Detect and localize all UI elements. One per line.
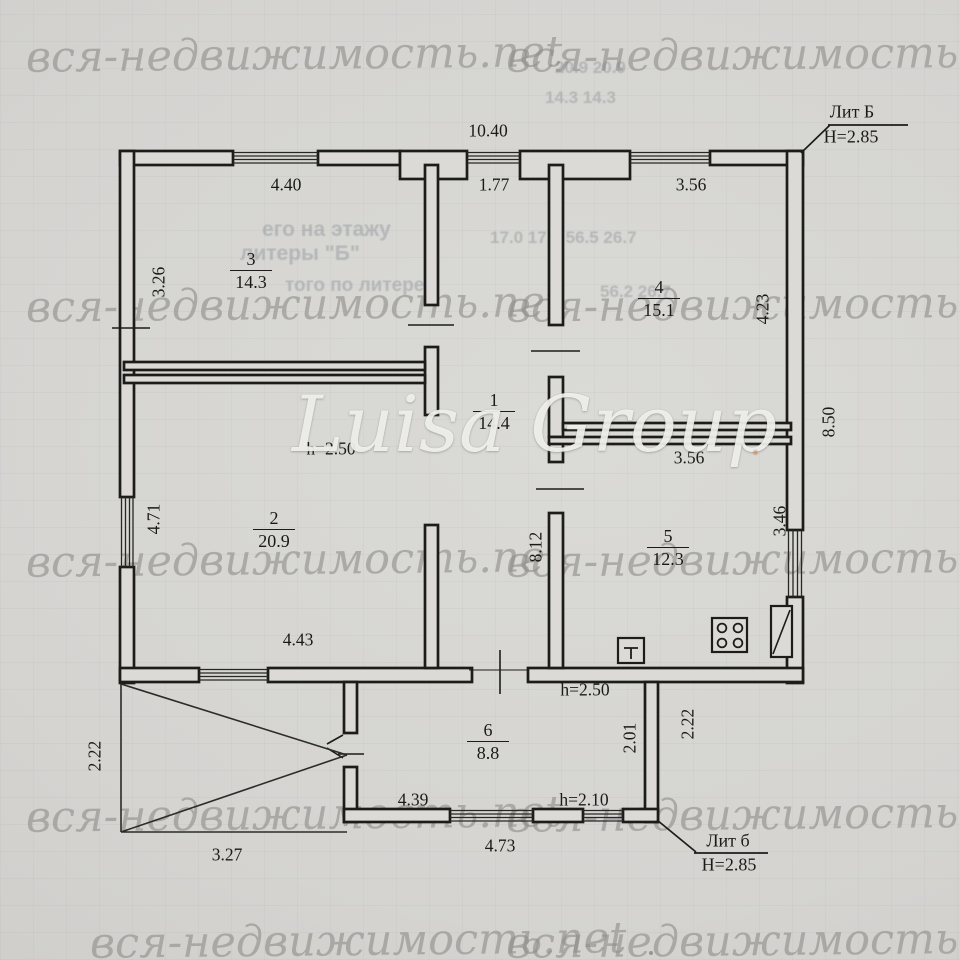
sink-icon <box>618 638 644 663</box>
room-4-number: 4 <box>638 278 680 299</box>
outer-walls <box>120 151 803 822</box>
dim-total-width: 10.40 <box>468 121 507 142</box>
dim-hall-width: 1.77 <box>479 175 510 196</box>
dim-room6-bottom: 4.73 <box>485 836 516 857</box>
dim-room6-width: 4.39 <box>398 790 429 811</box>
dim-porch-width: 3.27 <box>212 845 243 866</box>
room-2-area: 20.9 <box>253 530 295 551</box>
dim-right-side: 8.50 <box>819 407 840 438</box>
kitchen-fixtures <box>618 606 792 663</box>
dim-room6-side: 2.22 <box>678 709 699 740</box>
dim-h-room6-top: h=2.50 <box>560 680 609 701</box>
boiler-icon <box>771 606 792 657</box>
room-6-area: 8.8 <box>467 742 509 763</box>
dim-room4-depth: 4.23 <box>753 294 774 325</box>
room-5-number: 5 <box>647 527 689 548</box>
dim-room2-depth: 4.71 <box>144 504 165 535</box>
room-3-number: 3 <box>230 250 272 271</box>
dim-room3-width: 4.40 <box>271 175 302 196</box>
room-1-area: 14.4 <box>473 412 515 433</box>
room-6-label: 68.8 <box>467 721 509 764</box>
interior-walls <box>124 165 791 668</box>
dim-h-room6: h=2.10 <box>559 790 608 811</box>
floor-plan-drawing <box>0 0 960 960</box>
room-1-label: 114.4 <box>473 391 515 434</box>
dim-room5-width: 3.56 <box>674 448 705 469</box>
dim-hall-length: 8.12 <box>526 532 547 563</box>
dim-room2-width: 4.43 <box>283 630 314 651</box>
building-letter-B-label: Лит Б <box>830 102 875 123</box>
dim-room5-depth: 3.46 <box>770 506 791 537</box>
building-letter-b-height: Н=2.85 <box>702 855 757 876</box>
room-6-number: 6 <box>467 721 509 742</box>
porch-triangle <box>121 684 347 832</box>
building-letter-B-height: Н=2.85 <box>824 127 879 148</box>
dim-room6-depth: 2.01 <box>620 723 641 754</box>
stove-icon <box>712 618 747 652</box>
scanned-floor-plan-page: вся-недвижимость.netвся-недвижимость.net… <box>0 0 960 960</box>
room-3-label: 314.3 <box>230 250 272 293</box>
room-2-label: 220.9 <box>253 509 295 552</box>
room-5-label: 512.3 <box>647 527 689 570</box>
room-3-area: 14.3 <box>230 271 272 292</box>
building-letter-b-label: Лит б <box>706 831 749 852</box>
room-5-area: 12.3 <box>647 548 689 569</box>
dim-room4-width: 3.56 <box>676 175 707 196</box>
dim-room3-depth: 3.26 <box>149 267 170 298</box>
room-4-label: 415.1 <box>638 278 680 321</box>
room-4-area: 15.1 <box>638 299 680 320</box>
room-1-number: 1 <box>473 391 515 412</box>
dim-h-room2: h=2.50 <box>306 439 355 460</box>
pointer-lines <box>657 125 908 853</box>
window-hatches <box>122 153 802 822</box>
dim-porch-depth: 2.22 <box>85 741 106 772</box>
room-2-number: 2 <box>253 509 295 530</box>
